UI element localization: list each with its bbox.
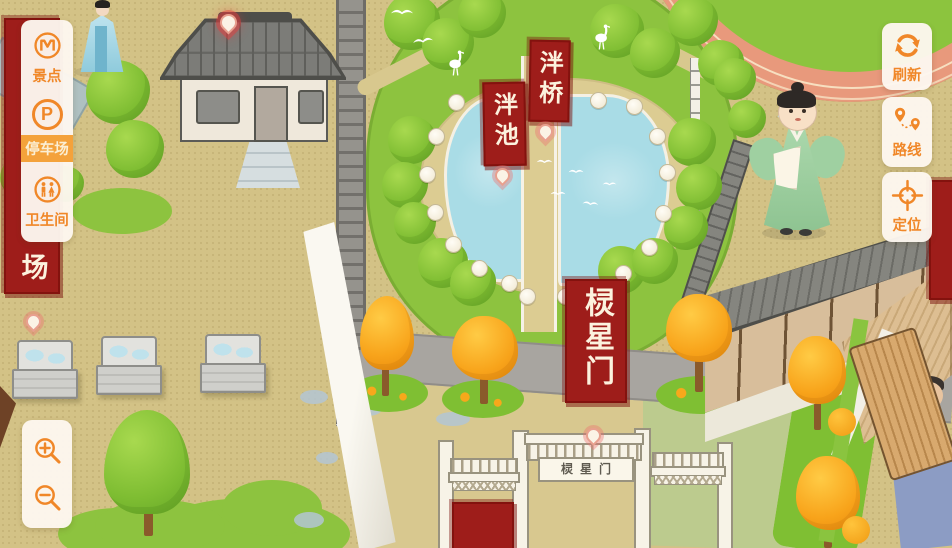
filter-restroom[interactable]: 卫生间 bbox=[25, 175, 69, 230]
stele bbox=[12, 340, 76, 398]
pond-post bbox=[519, 288, 536, 305]
gate-plaque-text: 棂星门 bbox=[561, 462, 618, 476]
stele-base bbox=[96, 365, 162, 395]
pond-post bbox=[649, 128, 666, 145]
scholar-foot bbox=[799, 229, 812, 236]
stele bbox=[96, 336, 160, 394]
filter-scenic-spots[interactable]: 景点 bbox=[33, 31, 62, 86]
house-door bbox=[254, 86, 288, 142]
dove-icon bbox=[536, 152, 553, 170]
pond-post bbox=[419, 166, 436, 183]
egret-icon bbox=[448, 48, 464, 83]
zoom-controls bbox=[22, 420, 72, 528]
statue-sash bbox=[95, 26, 107, 72]
dove-icon bbox=[581, 193, 600, 213]
stele bbox=[200, 334, 264, 392]
pond-post bbox=[655, 205, 672, 222]
pond-post bbox=[427, 204, 444, 221]
pond-post bbox=[448, 94, 465, 111]
map-canvas[interactable]: 棂星门 泮桥 泮池 棂星门 场 bbox=[0, 0, 952, 548]
bird-icon bbox=[411, 31, 435, 52]
zoom-out-button[interactable] bbox=[31, 481, 64, 514]
scholar-eye bbox=[802, 109, 806, 113]
autumn-tree bbox=[452, 316, 518, 380]
banner-pan-pond-text: 泮池 bbox=[486, 92, 522, 165]
locate-icon bbox=[891, 179, 924, 212]
autumn-tree bbox=[360, 296, 414, 370]
tree bbox=[714, 58, 756, 100]
banner-pan-pond[interactable]: 泮池 bbox=[482, 82, 526, 167]
gate-lattice bbox=[654, 475, 722, 485]
bird-icon bbox=[390, 4, 414, 22]
refresh-label: 刷新 bbox=[893, 64, 922, 85]
tree bbox=[104, 410, 190, 514]
zoom-in-button[interactable] bbox=[31, 434, 64, 467]
route-label: 路线 bbox=[893, 139, 922, 160]
autumn-tree bbox=[788, 336, 846, 404]
dove-icon bbox=[602, 174, 617, 192]
stele-base bbox=[200, 363, 266, 393]
filter-scenic-label: 景点 bbox=[33, 65, 62, 86]
refresh-button[interactable]: 刷新 bbox=[882, 23, 932, 90]
house-roof-tiles bbox=[163, 20, 343, 78]
tree bbox=[728, 100, 766, 138]
pond-post bbox=[626, 98, 643, 115]
autumn-shrub bbox=[828, 408, 856, 436]
house-window bbox=[196, 90, 240, 124]
pond-post bbox=[590, 92, 607, 109]
map-pin[interactable] bbox=[23, 311, 44, 332]
autumn-shrub bbox=[842, 516, 870, 544]
banner-left-partial-text: 场 bbox=[13, 253, 52, 286]
banner-pan-bridge-text: 泮桥 bbox=[531, 50, 567, 121]
gate-plaque: 棂星门 bbox=[538, 457, 634, 482]
pond-post bbox=[659, 164, 676, 181]
banner-lingxing-gate[interactable]: 棂星门 bbox=[565, 279, 627, 403]
banner-bottom-partial[interactable] bbox=[452, 502, 514, 548]
banner-lingxing-gate-text: 棂星门 bbox=[574, 287, 618, 401]
scholar-mouth bbox=[795, 118, 801, 121]
puddle bbox=[300, 390, 328, 404]
house-window bbox=[298, 90, 324, 124]
pond-post bbox=[445, 236, 462, 253]
app: 棂星门 泮桥 泮池 棂星门 场 景点 P 停车场 卫生 bbox=[0, 0, 952, 548]
gate-lattice bbox=[452, 481, 516, 491]
autumn-tree bbox=[666, 294, 732, 362]
filter-restroom-label: 卫生间 bbox=[25, 209, 69, 230]
locate-button[interactable]: 定位 bbox=[882, 172, 932, 242]
grass-mound bbox=[72, 188, 172, 234]
dove-icon bbox=[550, 184, 566, 202]
scholar-foot bbox=[780, 228, 793, 235]
egret-icon bbox=[594, 22, 610, 57]
banner-right-partial[interactable] bbox=[929, 180, 952, 300]
puddle bbox=[294, 512, 324, 528]
scenic-icon bbox=[33, 31, 62, 60]
banner-pan-bridge[interactable]: 泮桥 bbox=[528, 40, 570, 123]
tree bbox=[106, 120, 164, 178]
restroom-icon bbox=[33, 175, 62, 204]
dove-icon bbox=[568, 162, 584, 180]
filter-parking[interactable]: P 停车场 bbox=[21, 99, 73, 162]
stele-base bbox=[12, 369, 78, 399]
pond-post bbox=[471, 260, 488, 277]
refresh-icon bbox=[891, 29, 924, 62]
route-button[interactable]: 路线 bbox=[882, 97, 932, 167]
pond-post bbox=[501, 275, 518, 292]
pond-post bbox=[428, 128, 445, 145]
left-filter-panel: 景点 P 停车场 卫生间 bbox=[21, 20, 73, 242]
locate-label: 定位 bbox=[893, 214, 922, 235]
statue-hair bbox=[95, 0, 110, 8]
filter-parking-label: 停车场 bbox=[21, 135, 73, 162]
puddle bbox=[316, 452, 338, 464]
route-icon bbox=[891, 104, 924, 137]
parking-icon: P bbox=[32, 99, 63, 130]
scholar-eye bbox=[789, 109, 793, 113]
scholar-bun bbox=[791, 82, 804, 93]
pond-post bbox=[641, 239, 658, 256]
